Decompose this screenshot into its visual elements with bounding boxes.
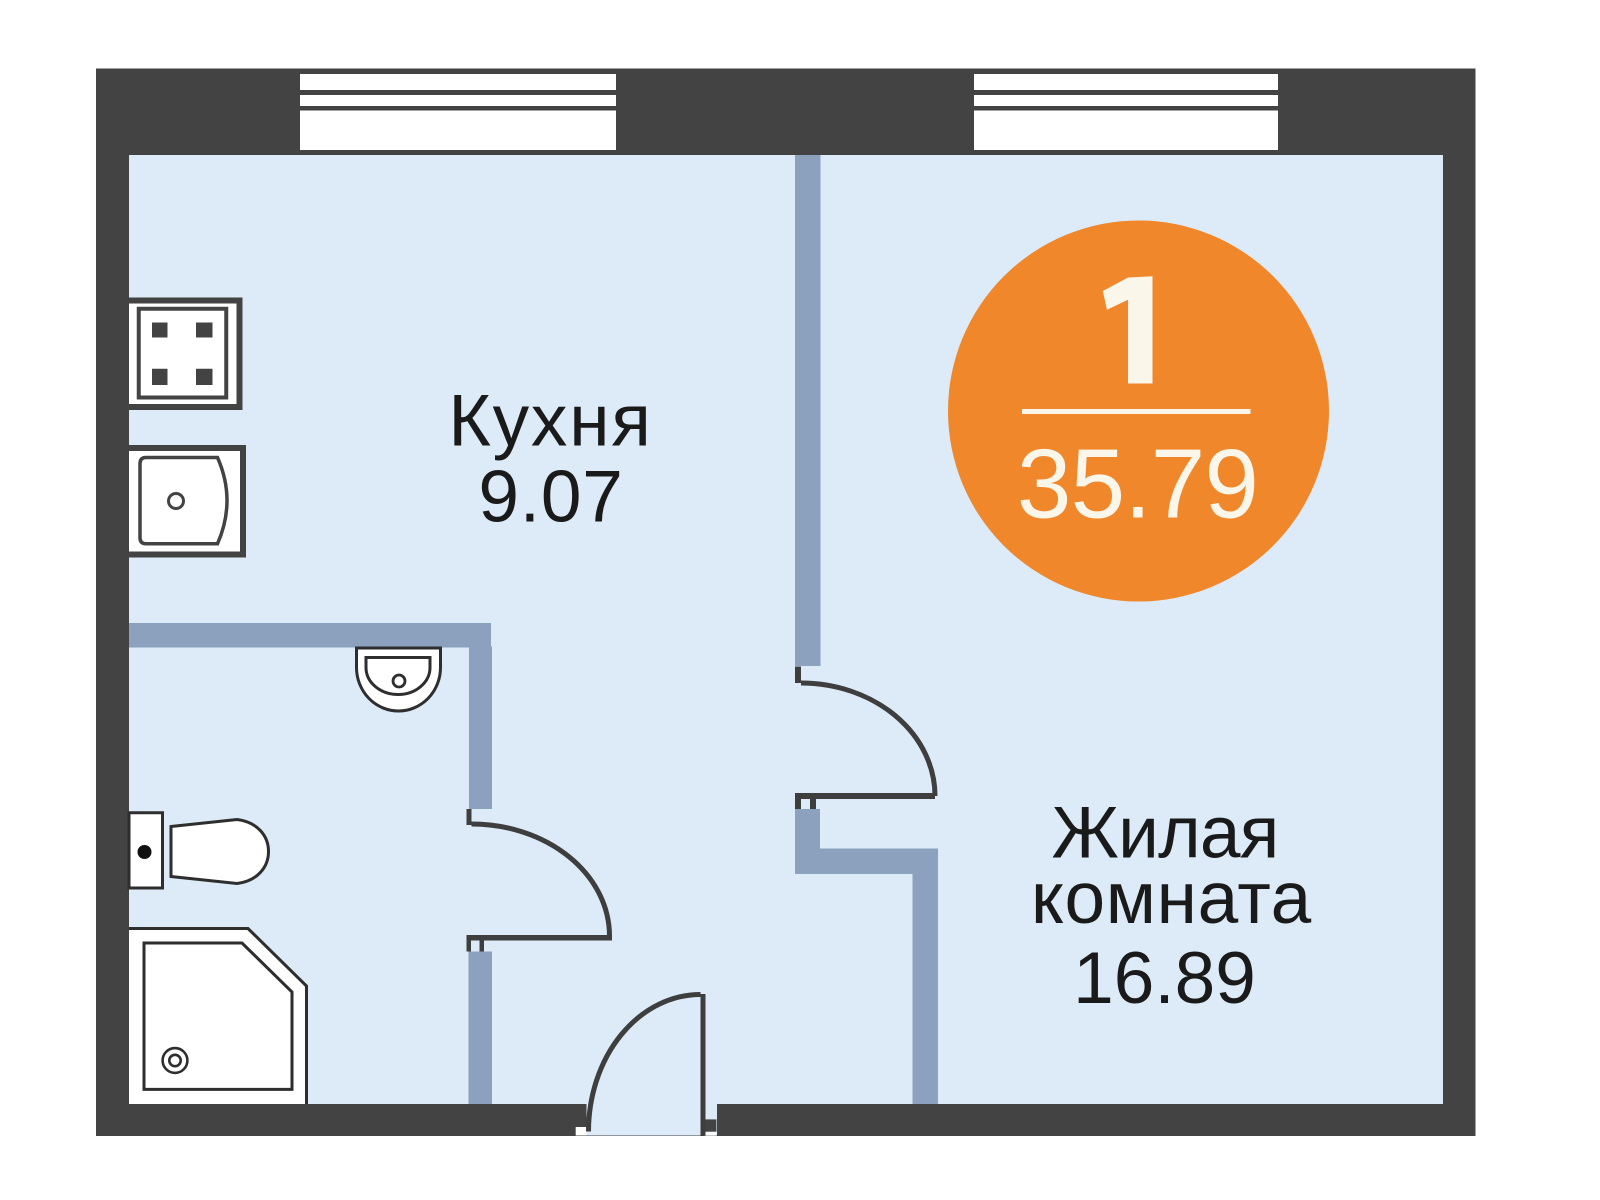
svg-text:9.07: 9.07 <box>478 457 623 538</box>
svg-text:16.89: 16.89 <box>1073 938 1256 1019</box>
svg-text:35.79: 35.79 <box>1017 429 1258 539</box>
svg-text:Кухня: Кухня <box>448 381 652 462</box>
svg-text:комната: комната <box>1031 858 1312 939</box>
